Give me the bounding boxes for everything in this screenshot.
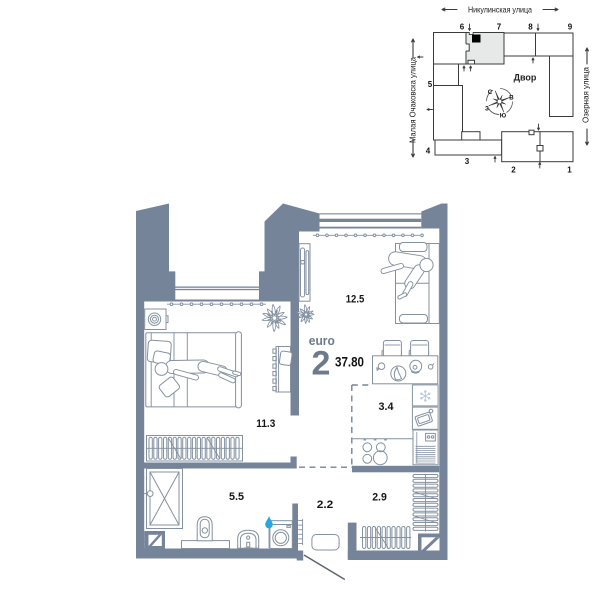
svg-text:2: 2: [312, 345, 331, 383]
svg-text:9: 9: [568, 23, 573, 32]
svg-text:37.80: 37.80: [335, 354, 364, 370]
svg-text:Никулинская улица: Никулинская улица: [468, 5, 532, 15]
svg-text:11.3: 11.3: [256, 418, 275, 430]
svg-text:3: 3: [465, 157, 470, 166]
svg-text:3.4: 3.4: [379, 401, 395, 413]
svg-text:2: 2: [511, 166, 516, 175]
svg-text:2.2: 2.2: [317, 499, 334, 511]
svg-text:5.5: 5.5: [229, 491, 244, 503]
svg-text:8: 8: [528, 23, 533, 32]
svg-text:Озерная улица: Озерная улица: [581, 67, 591, 123]
svg-text:З: З: [485, 106, 489, 113]
svg-text:5: 5: [428, 80, 433, 89]
svg-text:4: 4: [426, 147, 431, 156]
svg-text:В: В: [509, 95, 514, 102]
svg-text:Малая Очаковска улица: Малая Очаковска улица: [408, 57, 418, 143]
svg-text:С: С: [488, 89, 493, 96]
svg-text:7: 7: [497, 23, 502, 32]
svg-text:6: 6: [460, 23, 465, 32]
svg-text:1: 1: [567, 166, 572, 175]
svg-text:Ю: Ю: [500, 113, 507, 120]
svg-text:Двор: Двор: [514, 73, 537, 83]
svg-text:12.5: 12.5: [346, 293, 365, 305]
svg-text:2.9: 2.9: [372, 492, 387, 504]
